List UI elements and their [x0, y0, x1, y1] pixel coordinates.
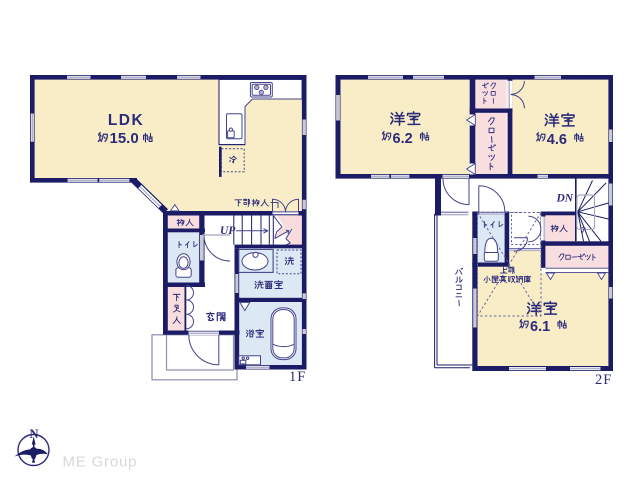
svg-text:15.0: 15.0 [110, 130, 139, 147]
svg-text:LDK: LDK [108, 112, 144, 129]
svg-text:1F: 1F [289, 369, 306, 385]
svg-text:ME Group: ME Group [63, 454, 138, 471]
svg-text:6.1: 6.1 [530, 319, 550, 335]
svg-text:DN: DN [556, 193, 574, 205]
svg-text:2F: 2F [595, 372, 612, 388]
svg-text:4.6: 4.6 [547, 132, 567, 148]
svg-text:6.2: 6.2 [393, 131, 413, 147]
